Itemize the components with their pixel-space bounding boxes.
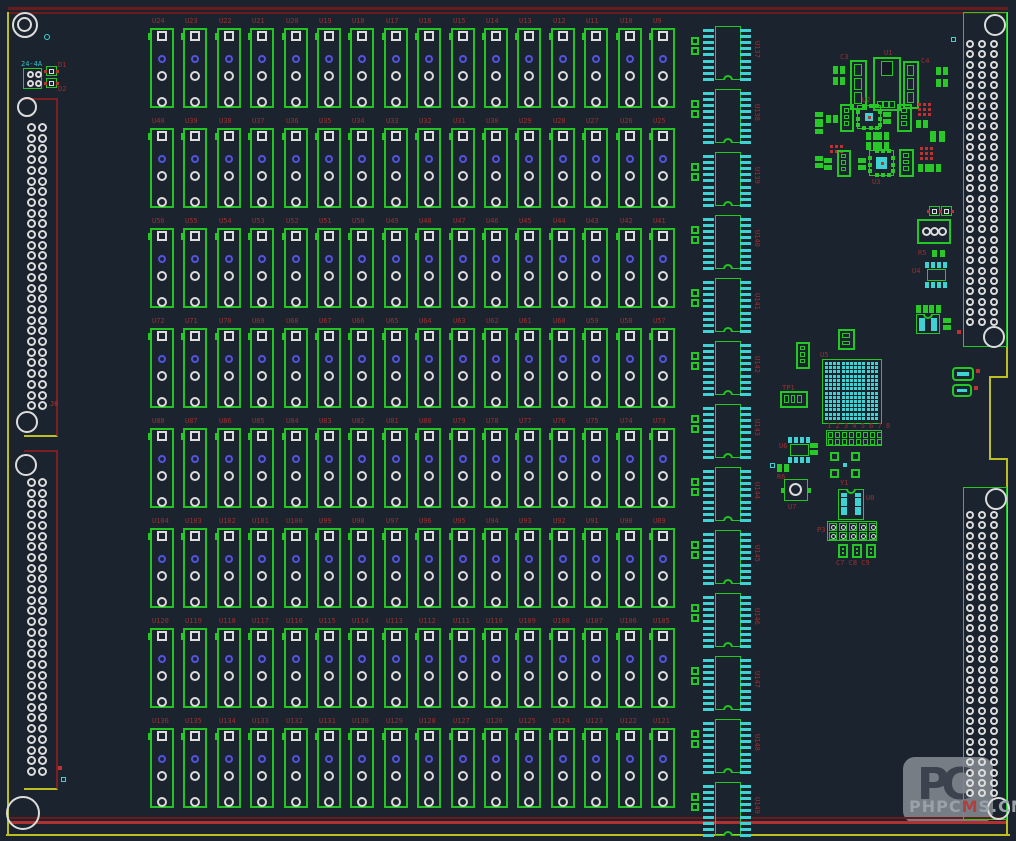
dip-pad xyxy=(703,728,714,731)
pad-round xyxy=(524,271,534,281)
pad-round xyxy=(257,571,267,581)
conn-pad xyxy=(27,80,34,87)
pad-round xyxy=(257,97,267,107)
connector-pad xyxy=(990,133,998,141)
ref-label: P3 xyxy=(817,527,825,534)
component-chip2 xyxy=(815,122,823,134)
dip-pad xyxy=(740,305,751,308)
pad-square xyxy=(524,731,534,741)
pad-round xyxy=(391,71,401,81)
pad-blue xyxy=(325,155,333,163)
bypass-cap xyxy=(691,47,699,55)
board-edge xyxy=(8,12,1008,14)
pad-square xyxy=(391,231,401,241)
pad-round xyxy=(391,271,401,281)
pad-square xyxy=(157,231,167,241)
dip-pad xyxy=(740,507,751,510)
pad-blue xyxy=(392,555,400,563)
connector-pad xyxy=(38,241,47,250)
chip-pad xyxy=(940,250,945,257)
qfn-pad xyxy=(878,123,882,127)
bga-ball xyxy=(833,417,836,420)
bga-ball xyxy=(846,400,849,403)
connector-pad xyxy=(27,671,36,680)
component-chip2 xyxy=(930,131,945,142)
grid-socket-label: U37 xyxy=(252,118,265,125)
grid-socket-label: U75 xyxy=(586,418,599,425)
socket-notch-mark xyxy=(649,633,653,640)
dip-pad xyxy=(703,104,714,107)
pad-round xyxy=(190,671,200,681)
dip-pad xyxy=(703,702,714,705)
watermark-text-left: PHPC xyxy=(909,797,962,816)
pad-round xyxy=(625,797,635,807)
socket-notch-mark xyxy=(515,333,519,340)
pad-round xyxy=(324,471,334,481)
pad-round xyxy=(491,697,501,707)
via xyxy=(928,113,931,116)
pad-square xyxy=(324,531,334,541)
pad-blue xyxy=(225,155,233,163)
dip-label: U142 xyxy=(753,356,760,373)
grid-socket-label: U128 xyxy=(419,718,436,725)
bga-ball xyxy=(842,370,845,373)
conn-pad xyxy=(35,71,42,78)
pcb-canvas[interactable]: PC PHPCMS.CN U24U23U22U21U20U19U18U17U16… xyxy=(0,0,1016,841)
bga-ball xyxy=(875,362,878,365)
pad-round xyxy=(658,197,668,207)
dip-pad xyxy=(740,816,751,819)
connector-pad xyxy=(990,748,998,756)
dip-pad xyxy=(703,576,714,579)
pad-square xyxy=(291,731,301,741)
socket-notch-mark xyxy=(248,633,252,640)
dip-label: U143 xyxy=(753,419,760,436)
grid-socket-label: U108 xyxy=(553,618,570,625)
pad-round xyxy=(224,571,234,581)
dip-pad xyxy=(703,740,714,743)
component-chip2 xyxy=(877,132,889,140)
bga-ball xyxy=(875,392,878,395)
socket-notch-mark xyxy=(248,33,252,40)
connector-pad xyxy=(27,209,36,218)
pad-round xyxy=(357,371,367,381)
pad-square xyxy=(591,231,601,241)
ref-label: C3 xyxy=(840,54,848,61)
socket-notch-mark xyxy=(482,233,486,240)
bypass-cap xyxy=(691,173,699,181)
dip-pad xyxy=(740,173,751,176)
dip-pad xyxy=(740,576,751,579)
pad-round xyxy=(391,571,401,581)
bga-ball xyxy=(854,379,857,382)
dip-pad xyxy=(703,330,714,333)
pad-round xyxy=(224,171,234,181)
soic-pad xyxy=(931,282,935,288)
bga-ball xyxy=(833,392,836,395)
chip-pad xyxy=(826,115,831,123)
opto-pad xyxy=(851,469,860,478)
cap-segment xyxy=(800,352,805,356)
pad-round xyxy=(291,671,301,681)
bga-ball xyxy=(825,387,828,390)
socket-notch-mark xyxy=(415,633,419,640)
via xyxy=(840,145,843,148)
grid-socket-label: U68 xyxy=(286,318,299,325)
connector-pad xyxy=(27,316,36,325)
connector-pad xyxy=(978,769,986,777)
pad-square xyxy=(558,131,568,141)
bga-ball xyxy=(854,387,857,390)
socket-notch-mark xyxy=(549,133,553,140)
pad-round xyxy=(324,497,334,507)
pad-round xyxy=(224,497,234,507)
cap-segment xyxy=(844,108,849,113)
pad-square xyxy=(491,731,501,741)
dip-pad xyxy=(740,557,751,560)
dip-pad xyxy=(703,708,714,711)
pad-blue xyxy=(659,155,667,163)
bga-ball xyxy=(854,366,857,369)
grid-socket-label: U85 xyxy=(252,418,265,425)
chip-pad xyxy=(936,305,941,313)
pad-square xyxy=(491,431,501,441)
dip-pad xyxy=(740,431,751,434)
dip-pad xyxy=(740,728,751,731)
qfn-pad xyxy=(856,117,860,121)
grid-socket-label: U77 xyxy=(519,418,532,425)
dip-pad xyxy=(740,620,751,623)
grid-socket-label: U34 xyxy=(352,118,365,125)
bypass-cap xyxy=(691,110,699,118)
pad-blue xyxy=(559,755,567,763)
pad-round xyxy=(157,271,167,281)
pad-round xyxy=(324,297,334,307)
dip-pad xyxy=(703,41,714,44)
socket-notch-mark xyxy=(248,333,252,340)
pad-square xyxy=(357,531,367,541)
grid-socket-label: U134 xyxy=(219,718,236,725)
via xyxy=(830,145,833,148)
socket-notch-mark xyxy=(215,633,219,640)
pad-square xyxy=(658,331,668,341)
header-pad xyxy=(863,439,868,445)
pad-blue xyxy=(158,355,166,363)
socket-notch-mark xyxy=(282,333,286,340)
socket-notch-mark xyxy=(515,633,519,640)
pad-round xyxy=(424,71,434,81)
dip-pad xyxy=(740,608,751,611)
connector-pad xyxy=(27,532,36,541)
socket-notch-mark xyxy=(282,733,286,740)
dip-pad xyxy=(740,645,751,648)
pad-round xyxy=(190,597,200,607)
dip-ic-body xyxy=(715,593,741,647)
pad-round xyxy=(658,397,668,407)
pad-round xyxy=(625,371,635,381)
watermark-text: PHPCMS.CN xyxy=(909,797,1016,816)
component-chip2 xyxy=(883,112,891,124)
pad-blue xyxy=(559,355,567,363)
grid-socket-label: U55 xyxy=(185,218,198,225)
dip-pad xyxy=(740,627,751,630)
dip-pad xyxy=(740,482,751,485)
connector-pad xyxy=(27,585,36,594)
dip-pad xyxy=(703,110,714,113)
header-hole xyxy=(871,525,876,530)
pad-round xyxy=(291,397,301,407)
connector-pad xyxy=(966,71,974,79)
socket-notch-mark xyxy=(282,633,286,640)
pad-round xyxy=(291,371,301,381)
component-capacitor xyxy=(852,544,862,558)
dip-pad xyxy=(703,425,714,428)
bga-ball xyxy=(875,375,878,378)
dip-pad xyxy=(703,381,714,384)
socket-notch-mark xyxy=(415,33,419,40)
pad-round xyxy=(190,497,200,507)
dip-pad xyxy=(740,708,751,711)
chip-pad xyxy=(943,67,948,75)
pad-square xyxy=(291,631,301,641)
pad-round xyxy=(625,771,635,781)
pad-round xyxy=(324,771,334,781)
socket-notch-mark xyxy=(181,333,185,340)
dip-notch xyxy=(723,390,733,395)
pad-round xyxy=(291,271,301,281)
ref-label: C4 xyxy=(921,58,929,65)
dip-pad xyxy=(740,35,751,38)
dip-pad xyxy=(703,665,714,668)
connector-pad xyxy=(27,391,36,400)
pad-square xyxy=(257,31,267,41)
pad-blue xyxy=(659,555,667,563)
pad-blue xyxy=(292,755,300,763)
qfn-pad xyxy=(878,110,882,114)
pad-square xyxy=(424,331,434,341)
pad-blue xyxy=(659,255,667,263)
connector-pad xyxy=(38,123,47,132)
pad-round xyxy=(391,297,401,307)
grid-socket-label: U50 xyxy=(352,218,365,225)
component-chip2 xyxy=(929,164,941,172)
pad-blue xyxy=(626,455,634,463)
header-pad xyxy=(856,432,861,438)
reg-tab xyxy=(881,61,893,76)
dip-ic-body xyxy=(715,278,741,332)
pad-square xyxy=(491,331,501,341)
soic-pad xyxy=(841,498,847,502)
component-diode xyxy=(941,206,952,216)
dip-pad xyxy=(740,29,751,32)
component-bga xyxy=(822,359,882,424)
bga-ball xyxy=(825,400,828,403)
dip-pad xyxy=(740,809,751,812)
cap-segment xyxy=(901,108,907,113)
socket-notch-mark xyxy=(148,233,152,240)
header-pad xyxy=(869,523,877,531)
pad-round xyxy=(591,97,601,107)
bypass-cap xyxy=(691,163,699,171)
dip-label: U148 xyxy=(753,734,760,751)
dip-notch xyxy=(723,201,733,206)
grid-socket-label: U116 xyxy=(286,618,303,625)
bypass-cap xyxy=(691,236,699,244)
pad-blue xyxy=(258,355,266,363)
pad-round xyxy=(224,97,234,107)
dip-pad xyxy=(703,255,714,258)
socket-notch-mark xyxy=(616,533,620,540)
grid-socket-label: U24 xyxy=(152,18,165,25)
chip-pad xyxy=(936,67,941,75)
via xyxy=(923,103,926,106)
pad-blue xyxy=(358,755,366,763)
pad-round xyxy=(257,671,267,681)
filter-pad xyxy=(961,389,967,392)
grid-socket-label: U61 xyxy=(519,318,532,325)
pad-round xyxy=(157,797,167,807)
grid-socket-label: U45 xyxy=(519,218,532,225)
socket-notch-mark xyxy=(515,733,519,740)
pad-square xyxy=(591,531,601,541)
grid-socket-label: U102 xyxy=(219,518,236,525)
connector-pad xyxy=(966,40,974,48)
dip-pad xyxy=(740,425,751,428)
pad-blue xyxy=(525,255,533,263)
component-chip2 xyxy=(929,305,941,313)
grid-socket-label: U80 xyxy=(419,418,432,425)
connector-pad xyxy=(978,143,986,151)
pad-round xyxy=(391,771,401,781)
bga-ball xyxy=(858,392,861,395)
grid-socket-label: U58 xyxy=(620,318,633,325)
component-capacitor xyxy=(897,104,912,132)
bga-ball xyxy=(871,370,874,373)
pad-blue xyxy=(525,455,533,463)
bga-ball xyxy=(846,366,849,369)
socket-notch-mark xyxy=(181,33,185,40)
pad-round xyxy=(591,497,601,507)
connector-pad xyxy=(27,639,36,648)
socket-notch-mark xyxy=(415,533,419,540)
header-pad xyxy=(859,523,867,531)
grid-socket-label: U132 xyxy=(286,718,303,725)
bga-ball xyxy=(875,370,878,373)
bga-ball xyxy=(846,392,849,395)
pad-square xyxy=(625,231,635,241)
pad-blue xyxy=(592,455,600,463)
socket-notch-mark xyxy=(215,233,219,240)
pad-blue xyxy=(158,155,166,163)
grid-socket-label: U36 xyxy=(286,118,299,125)
socket-notch-mark xyxy=(148,533,152,540)
diode-body xyxy=(49,81,54,86)
pad-round xyxy=(324,271,334,281)
soic-pad xyxy=(931,262,935,268)
connector-pad xyxy=(990,195,998,203)
bga-ball xyxy=(867,383,870,386)
socket-notch-mark xyxy=(215,533,219,540)
dip-pad xyxy=(703,564,714,567)
socket-notch-mark xyxy=(148,733,152,740)
dip-pad xyxy=(703,791,714,794)
header-pad xyxy=(828,432,833,438)
pad-round xyxy=(157,297,167,307)
qfn-pad xyxy=(875,173,879,177)
connector-pad xyxy=(38,305,47,314)
chip-pad xyxy=(943,318,951,323)
pad-round xyxy=(257,397,267,407)
pad-round xyxy=(524,597,534,607)
grid-socket-label: U31 xyxy=(453,118,466,125)
cap-segment xyxy=(903,153,909,158)
mounting-hole xyxy=(16,411,38,433)
grid-socket-label: U49 xyxy=(386,218,399,225)
dip-pad xyxy=(740,677,751,680)
diode-mark xyxy=(951,210,954,213)
connector-pad xyxy=(38,585,47,594)
connector-pad xyxy=(966,143,974,151)
chip-pad xyxy=(810,443,818,448)
pad-blue xyxy=(225,755,233,763)
dip-ic-body xyxy=(715,152,741,206)
dip-pad xyxy=(740,407,751,410)
connector-pad xyxy=(38,166,47,175)
socket-notch-mark xyxy=(616,333,620,340)
socket-notch-mark xyxy=(315,733,319,740)
bga-ball xyxy=(850,375,853,378)
dip-label: U137 xyxy=(753,41,760,58)
dip-pad xyxy=(740,53,751,56)
dip-pad xyxy=(740,230,751,233)
pad-round xyxy=(558,371,568,381)
dip-pad xyxy=(740,110,751,113)
grid-socket-label: U105 xyxy=(653,618,670,625)
dip-pad xyxy=(740,255,751,258)
bga-ball xyxy=(829,396,832,399)
pad-round xyxy=(391,797,401,807)
soic-pad xyxy=(841,511,847,515)
chip-pad xyxy=(833,66,838,74)
cap-segment xyxy=(907,92,914,103)
socket-notch-mark xyxy=(382,733,386,740)
bga-ball xyxy=(862,404,865,407)
header-pad xyxy=(835,432,840,438)
grid-socket-label: U29 xyxy=(519,118,532,125)
component-capacitor xyxy=(903,61,919,109)
pad-square xyxy=(224,331,234,341)
diode-body xyxy=(944,209,949,214)
dip-pad xyxy=(703,816,714,819)
bypass-cap xyxy=(691,740,699,748)
bga-ball xyxy=(842,413,845,416)
grid-socket-label: U69 xyxy=(252,318,265,325)
dip-pad xyxy=(740,456,751,459)
pad-square xyxy=(458,131,468,141)
socket-notch-mark xyxy=(549,733,553,740)
dip-pad xyxy=(740,639,751,642)
pad-round xyxy=(524,471,534,481)
pad-round xyxy=(324,71,334,81)
soic-pad xyxy=(937,262,941,268)
pad-blue xyxy=(659,455,667,463)
pad-blue xyxy=(425,655,433,663)
grid-socket-label: U111 xyxy=(453,618,470,625)
pad-square xyxy=(391,431,401,441)
component-chip2 xyxy=(826,115,838,123)
cap-segment xyxy=(797,395,802,403)
pad-round xyxy=(257,771,267,781)
